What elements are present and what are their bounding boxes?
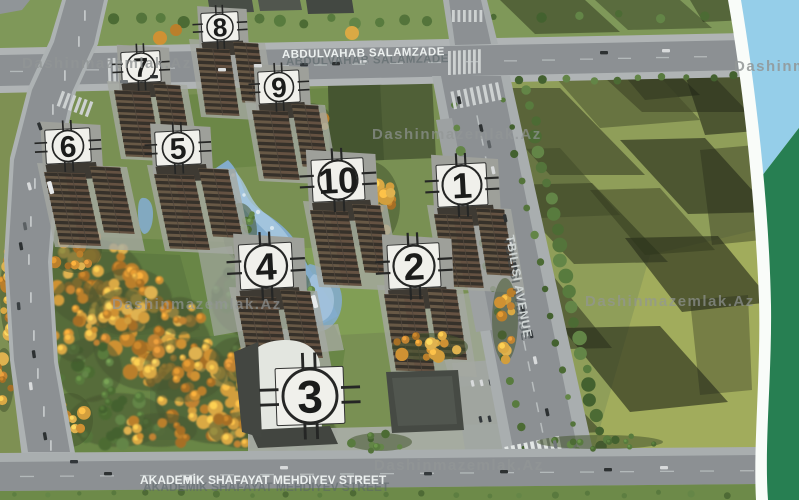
svg-text:Dashinmazemlak.Az: Dashinmazemlak.Az <box>112 296 282 313</box>
svg-text:Dashinmazemlak.Az: Dashinmazemlak.Az <box>585 293 755 310</box>
svg-text:Dashinmazemlak.Az: Dashinmazemlak.Az <box>372 126 542 143</box>
svg-text:Dashinmazemlak.Az: Dashinmazemlak.Az <box>374 457 544 474</box>
svg-text:Dashinmazemlak.Az: Dashinmazemlak.Az <box>22 55 192 72</box>
svg-text:Dashinmazemlak.Az: Dashinmazemlak.Az <box>734 58 799 75</box>
